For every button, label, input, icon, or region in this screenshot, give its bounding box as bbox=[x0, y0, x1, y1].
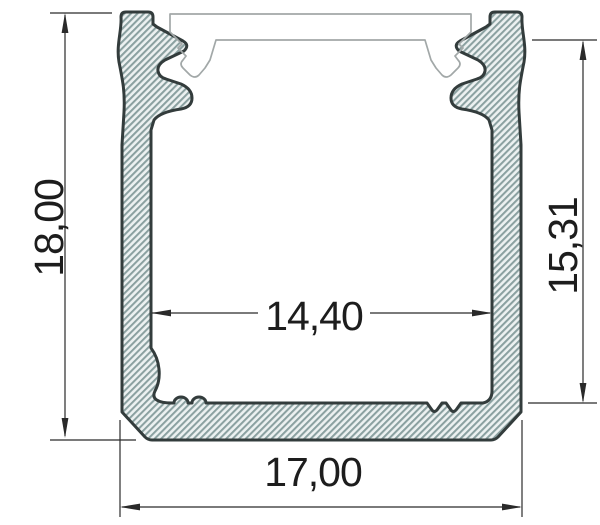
dimension-overall-height: 18,00 bbox=[26, 13, 136, 440]
cover-plate-with-clip-legs bbox=[170, 14, 471, 77]
dimension-label-overall-width: 17,00 bbox=[264, 449, 362, 495]
arrowhead-right-icon bbox=[502, 504, 522, 511]
arrowhead-down-icon bbox=[62, 418, 69, 438]
arrowhead-up-icon bbox=[580, 40, 587, 60]
arrowhead-down-icon bbox=[580, 383, 587, 403]
dimension-label-inner-height: 15,31 bbox=[540, 197, 586, 295]
aluminium-profile bbox=[118, 12, 525, 440]
dimension-inner-width: 14,40 bbox=[151, 293, 492, 339]
diffuser-cover bbox=[170, 14, 471, 77]
led-profile-cross-section-drawing: 18,00 15,31 14,40 17,00 bbox=[0, 0, 600, 525]
dimension-label-overall-height: 18,00 bbox=[26, 179, 72, 277]
arrowhead-left-icon bbox=[120, 504, 140, 511]
arrowhead-left-icon bbox=[151, 310, 171, 317]
technical-drawing-canvas: 18,00 15,31 14,40 17,00 bbox=[0, 0, 600, 525]
dimension-label-inner-width: 14,40 bbox=[265, 293, 363, 339]
dimension-inner-height: 15,31 bbox=[528, 40, 597, 403]
profile-body-shape bbox=[118, 12, 525, 440]
arrowhead-right-icon bbox=[472, 310, 492, 317]
arrowhead-up-icon bbox=[62, 13, 69, 33]
